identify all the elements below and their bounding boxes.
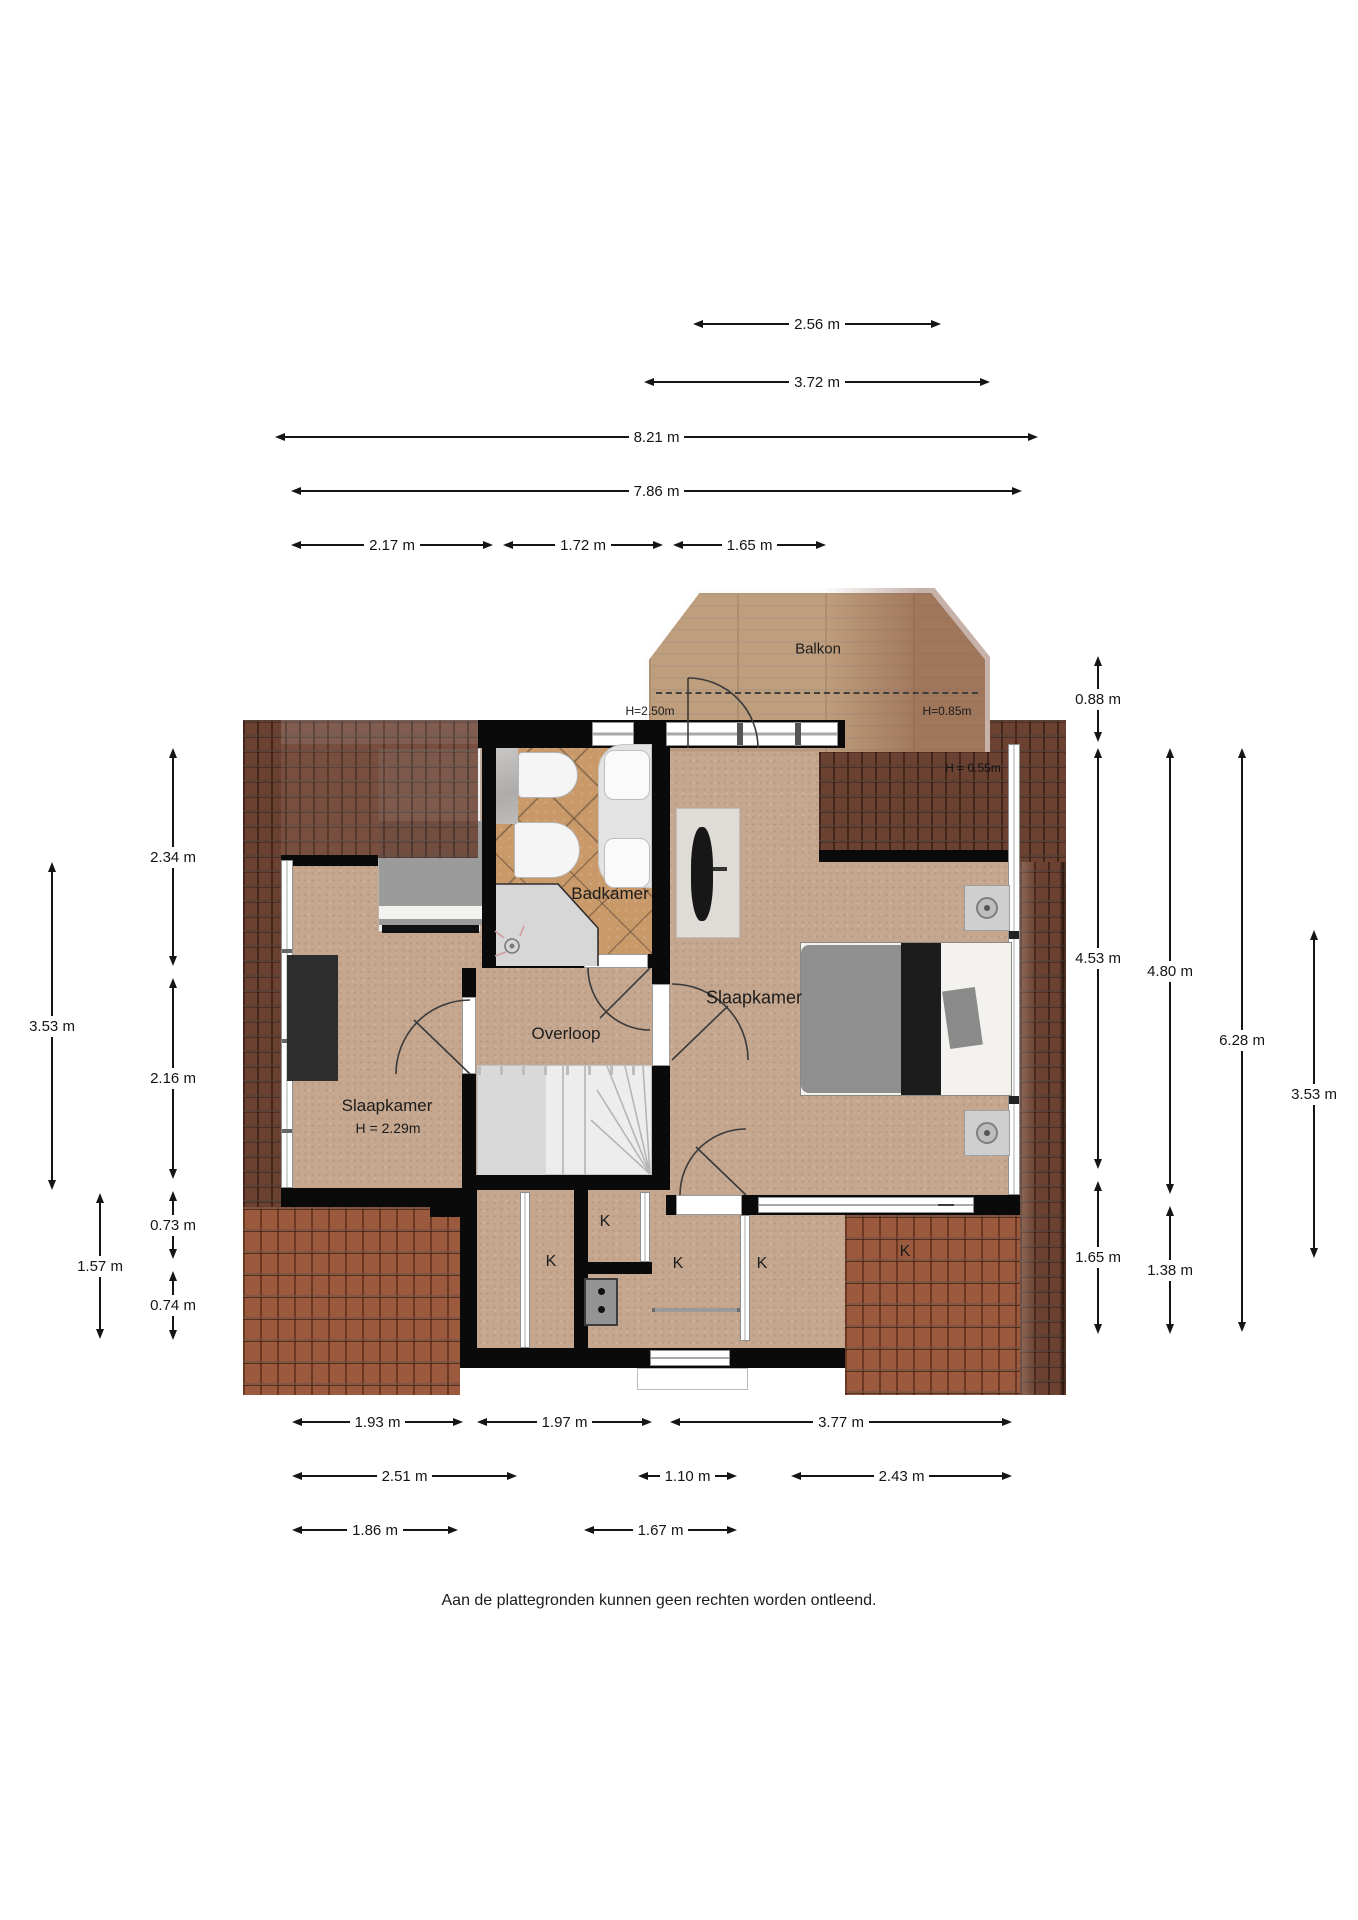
dim-left-1-57: 1.57 m <box>93 1193 107 1339</box>
dim-left-0-73: 0.73 m <box>166 1191 180 1259</box>
dim-bottom-1-86: 1.86 m <box>292 1523 458 1537</box>
closet-label: K <box>673 1255 684 1273</box>
dim-top-2-56: 2.56 m <box>693 317 941 331</box>
dim-top-7-86: 7.86 m <box>291 484 1022 498</box>
bedroom-left-height-label: H = 2.29m <box>356 1120 421 1136</box>
dim-right-1-65: 1.65 m <box>1091 1181 1105 1334</box>
dim-bottom-1-67: 1.67 m <box>584 1523 737 1537</box>
dim-bottom-1-10: 1.10 m <box>638 1469 737 1483</box>
dim-left-3-53: 3.53 m <box>45 862 59 1190</box>
dim-left-2-34: 2.34 m <box>166 748 180 966</box>
dim-right-0-88: 0.88 m <box>1091 656 1105 742</box>
bathroom-label: Badkamer <box>571 884 648 904</box>
balcony-label: Balkon <box>795 641 841 658</box>
stroke-layer <box>0 0 1358 1920</box>
dim-right-1-38: 1.38 m <box>1163 1206 1177 1334</box>
dim-right-4-53: 4.53 m <box>1091 748 1105 1169</box>
dim-left-0-74: 0.74 m <box>166 1271 180 1340</box>
dim-right-3-53: 3.53 m <box>1307 930 1321 1258</box>
dim-top-2-17: 2.17 m <box>291 538 493 552</box>
bedroom-left-label: Slaapkamer <box>342 1096 433 1116</box>
closet-label: K <box>757 1255 768 1273</box>
dim-bottom-2-43: 2.43 m <box>791 1469 1012 1483</box>
dim-bottom-1-97: 1.97 m <box>477 1415 652 1429</box>
closet-label: K <box>546 1253 557 1271</box>
dim-top-3-72: 3.72 m <box>644 375 990 389</box>
balcony-door-height-label: H=2.50m <box>625 704 674 718</box>
dim-right-6-28: 6.28 m <box>1235 748 1249 1332</box>
dim-bottom-2-51: 2.51 m <box>292 1469 517 1483</box>
dim-left-2-16: 2.16 m <box>166 978 180 1179</box>
bedroom-right-label: Slaapkamer <box>706 988 802 1009</box>
disclaimer-text: Aan de plattegronden kunnen geen rechten… <box>441 1592 876 1610</box>
balcony-right-height-label: H=0.85m <box>922 704 971 718</box>
floorplan-canvas: Balkon H=2.50m H=0.85m H = 0.55m Badkame… <box>0 0 1358 1920</box>
dim-right-4-80: 4.80 m <box>1163 748 1177 1194</box>
landing-label: Overloop <box>532 1024 601 1044</box>
dim-bottom-3-77: 3.77 m <box>670 1415 1012 1429</box>
closet-label: K <box>600 1213 611 1231</box>
dim-top-1-65: 1.65 m <box>673 538 826 552</box>
dim-top-1-72: 1.72 m <box>503 538 663 552</box>
closet-label: K <box>900 1243 911 1261</box>
roof-height-label: H = 0.55m <box>945 761 1001 775</box>
dim-bottom-1-93: 1.93 m <box>292 1415 463 1429</box>
dim-top-8-21: 8.21 m <box>275 430 1038 444</box>
